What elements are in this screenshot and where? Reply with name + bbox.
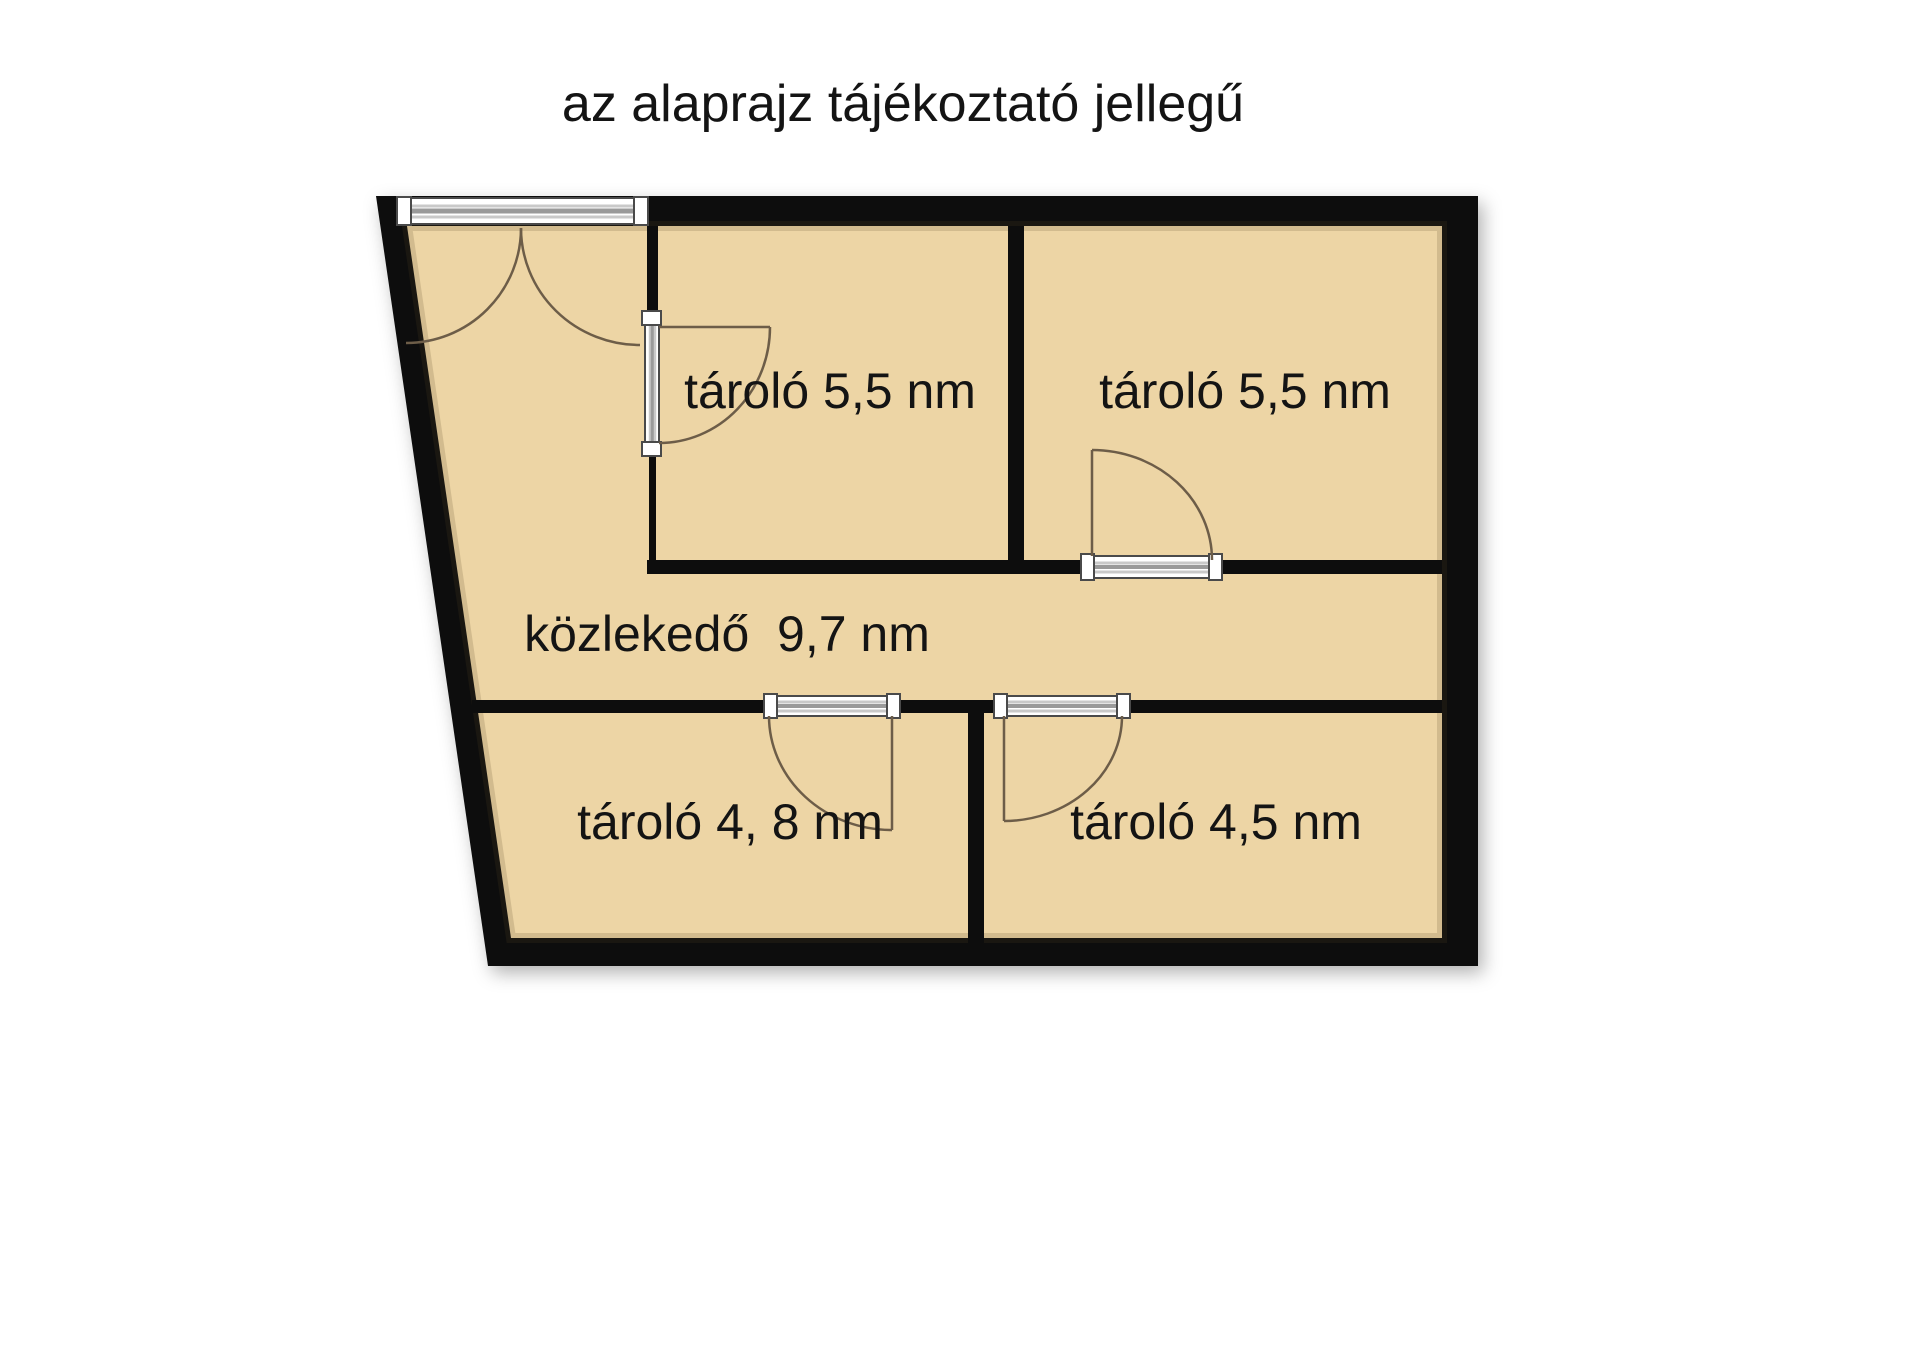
floor-plan-drawing bbox=[0, 0, 1920, 1358]
wall-between-top-storages bbox=[1008, 226, 1024, 574]
room-label-storage-bottom-right: tároló 4,5 nm bbox=[1070, 793, 1362, 851]
room-label-storage-bottom-left: tároló 4, 8 nm bbox=[577, 793, 883, 851]
door-jamb bbox=[642, 311, 661, 325]
floor-plan-page: az alaprajz tájékoztató jellegű tároló 5… bbox=[0, 0, 1920, 1358]
wall-storage1-left-upper bbox=[647, 226, 658, 318]
door-jamb bbox=[1081, 554, 1094, 580]
room-label-corridor: közlekedő 9,7 nm bbox=[524, 605, 930, 663]
wall-below-corridor bbox=[472, 700, 1442, 713]
wall-storage1-left-lower bbox=[649, 450, 656, 574]
entry-door-jamb-right bbox=[634, 197, 648, 225]
room-label-storage-top-left: tároló 5,5 nm bbox=[684, 362, 976, 420]
entry-door-jamb-left bbox=[397, 197, 411, 225]
room-label-storage-top-right: tároló 5,5 nm bbox=[1099, 362, 1391, 420]
wall-between-bottom-storages bbox=[968, 700, 984, 966]
page-title: az alaprajz tájékoztató jellegű bbox=[562, 74, 1244, 134]
door-jamb bbox=[1117, 694, 1130, 718]
wall-below-top-storages bbox=[647, 560, 1442, 574]
door-jamb bbox=[994, 694, 1007, 718]
door-jamb bbox=[887, 694, 900, 718]
door-jamb bbox=[764, 694, 777, 718]
door-jamb bbox=[642, 442, 661, 456]
